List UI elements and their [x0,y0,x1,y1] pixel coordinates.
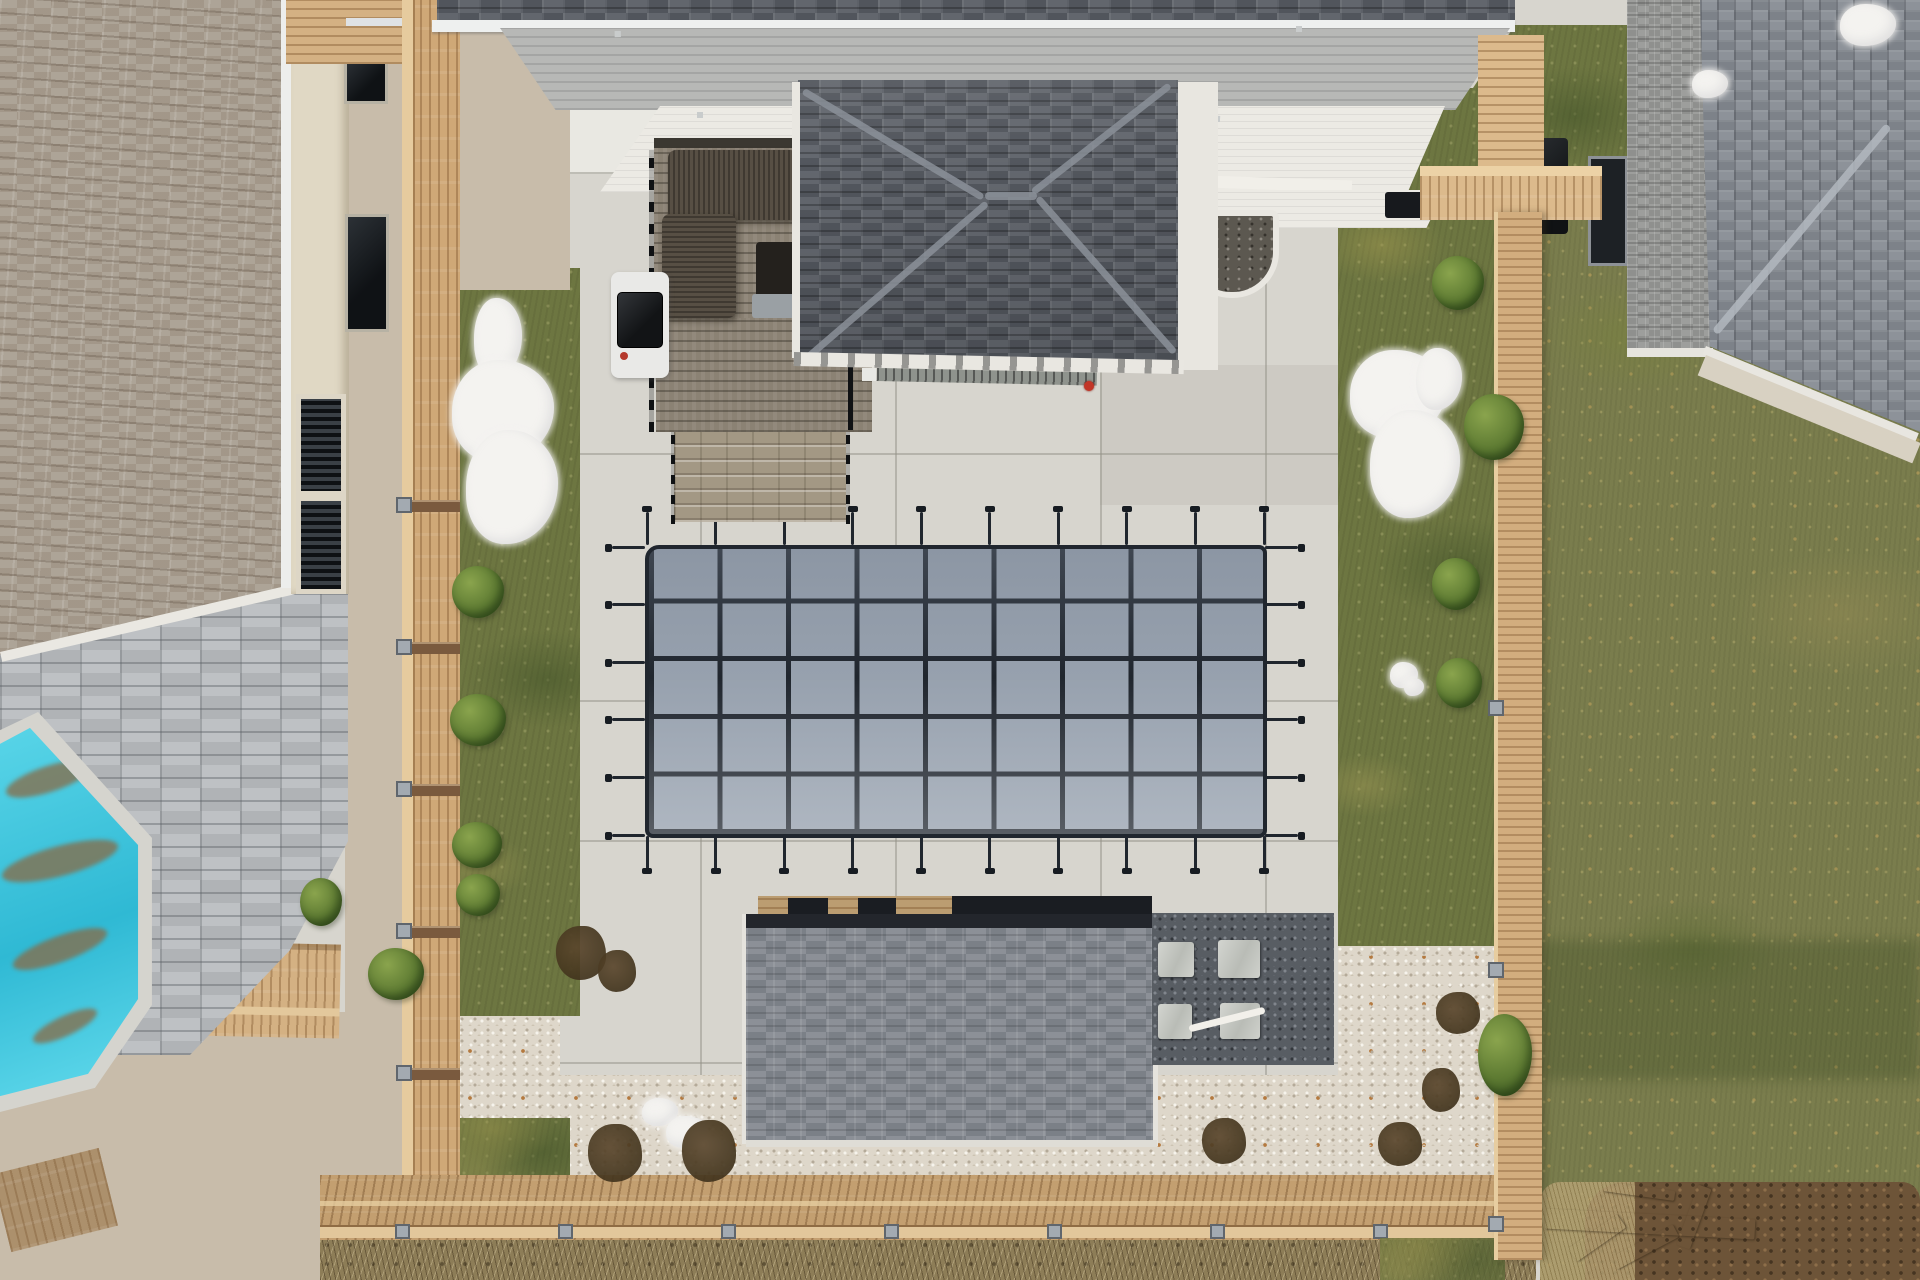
strap-anchor-left [605,544,612,552]
dirt-debris-patch [588,1124,642,1182]
strap-stub-top [920,512,923,545]
grill-body [617,292,663,348]
strap-stub-left [612,776,645,779]
strap-stub-right [1265,718,1298,721]
skylight-pane [1296,26,1302,32]
skylight [615,29,744,67]
stepping-stone [1158,1004,1192,1039]
strap-anchor-right [1298,659,1305,667]
dirt-debris-patch [682,1120,736,1182]
aerial-backyard-photo [0,0,1920,1280]
strap-stub-right [1265,661,1298,664]
strap-stub-bottom [783,836,786,869]
pool-safety-cover [645,545,1267,838]
fence-post-cap [1210,1224,1225,1239]
strap-anchor-bottom [642,868,652,874]
strap-stub-right [1265,776,1298,779]
left-grass-corner [458,1118,570,1180]
strap-anchor-bottom [1259,868,1269,874]
sofa-left [662,214,736,318]
fence-post-cap [396,639,412,655]
strap-anchor-left [605,774,612,782]
strap-anchor-right [1298,832,1305,840]
fence-post-cap [395,1224,410,1239]
left-house-window [345,214,389,332]
strap-stub-bottom [714,836,717,869]
hip-ridge-apex [985,192,1037,200]
fence-post-cap [1488,700,1504,716]
sofa-top [668,150,798,220]
strap-stub-right [1265,546,1298,549]
strap-stub-top [1263,512,1266,545]
dirt-debris-patch [1202,1118,1246,1164]
strap-stub-top [1125,512,1128,545]
strap-stub-right [1265,834,1298,837]
fence-post-cap [396,923,412,939]
fence-post-cap [558,1224,573,1239]
strap-stub-bottom [988,836,991,869]
evergreen-shrub [300,878,342,926]
cabana-roof [746,928,1155,1144]
strap-stub-bottom [1125,836,1128,869]
bottom-fence-rail [320,1225,1536,1238]
fence-post-beam [404,926,460,938]
left-house-window [344,58,388,104]
strap-stub-top [646,512,649,545]
deck-railing-right [848,366,853,430]
strap-anchor-top [985,506,995,512]
fence-post-cap [1488,1216,1504,1232]
grill-knob [620,352,628,360]
bay-mullion [301,491,341,501]
wall-window-pane [697,112,703,118]
neighbor-wall-gutter [1627,348,1713,357]
sprinkler-red-cap [1084,381,1094,391]
porch-roof-fascia-left [792,82,800,358]
strap-anchor-top [1053,506,1063,512]
steps-rail-left [671,432,675,524]
right-fence [1494,212,1542,1260]
strap-anchor-bottom [985,868,995,874]
strap-anchor-top [1122,506,1132,512]
cabana-left-fascia [742,914,746,1144]
strap-anchor-top [1190,506,1200,512]
fence-post-cap [396,1065,412,1081]
strap-anchor-right [1298,544,1305,552]
alley-gravel [345,0,410,1055]
strap-stub-bottom [1057,836,1060,869]
cabana-gutter [746,1140,1157,1147]
porch-right-wall [1178,82,1218,370]
pool-cover-debris-streak [29,1002,101,1050]
skylight [1296,26,1428,56]
strap-anchor-top [916,506,926,512]
neighbor-wall-right [1627,0,1710,352]
strap-stub-bottom [920,836,923,869]
steps-rail-right [846,432,850,524]
strap-anchor-bottom [779,868,789,874]
strap-stub-top [1057,512,1060,545]
fence-post-beam [404,784,460,796]
dirt-debris-patch [598,950,636,992]
lawn-dark-band [1540,940,1920,1080]
fence-post-cap [396,497,412,513]
strap-anchor-bottom [1190,868,1200,874]
stepping-stone [1158,942,1194,977]
fence-post-beam [404,500,460,512]
joint-h4 [560,840,1338,842]
strap-anchor-right [1298,774,1305,782]
weeds-green-patch [1380,1238,1505,1280]
strap-stub-top [851,512,854,545]
dirt-debris-patch [1422,1068,1460,1112]
neighbor-roof-left [0,0,291,660]
strap-stub-bottom [851,836,854,869]
strap-anchor-left [605,601,612,609]
strap-stub-left [612,834,645,837]
fence-post-cap [396,781,412,797]
strap-stub-left [612,546,645,549]
fence-post-cap [721,1224,736,1239]
strap-anchor-bottom [1053,868,1063,874]
dirt-debris-patch [1378,1122,1422,1166]
house-upper-roof [437,0,1515,22]
pool-cover-debris-streak [0,831,122,891]
dark-gravel-bed [1152,913,1334,1065]
fence-post-cap [1373,1224,1388,1239]
strap-stub-right [1265,603,1298,606]
bottom-fence-midrail [320,1201,1536,1206]
strap-anchor-bottom [916,868,926,874]
strap-anchor-bottom [848,868,858,874]
strap-anchor-bottom [711,868,721,874]
strap-stub-bottom [1263,836,1266,869]
strap-stub-left [612,718,645,721]
strap-anchor-right [1298,716,1305,724]
fence-post-cap [1488,962,1504,978]
bottom-weeds [320,1240,1536,1280]
left-fence [402,0,460,1240]
pergola-beam-vertical [1478,35,1544,178]
deck-steps [674,432,846,522]
strap-stub-top [988,512,991,545]
dirt-debris-patch [1436,992,1480,1034]
bay-window [296,394,346,594]
strap-stub-left [612,603,645,606]
pool-cover-debris-streak [9,920,112,979]
wall-window [1212,116,1344,182]
strap-stub-top [1194,512,1197,545]
fence-post-beam [404,1068,460,1080]
strap-stub-bottom [1194,836,1197,869]
skylight-pane [615,31,621,37]
fence-post-cap [1047,1224,1062,1239]
left-fence-toprail [402,0,415,1240]
stepping-stone [1218,940,1260,978]
strap-anchor-bottom [1122,868,1132,874]
strap-anchor-left [605,716,612,724]
strap-stub-bottom [646,836,649,869]
cabana-deck-gap [952,896,1152,914]
deck-post [862,368,876,381]
fence-post-cap [884,1224,899,1239]
strap-anchor-right [1298,601,1305,609]
strap-anchor-left [605,832,612,840]
fence-post-beam [404,642,460,654]
strap-stub-left [612,661,645,664]
strap-anchor-top [642,506,652,512]
strap-anchor-top [1259,506,1269,512]
concrete-shaded-slab [1100,365,1338,505]
strap-anchor-left [605,659,612,667]
bottom-fence [320,1175,1536,1245]
pergola-beam-edge [1420,166,1602,176]
